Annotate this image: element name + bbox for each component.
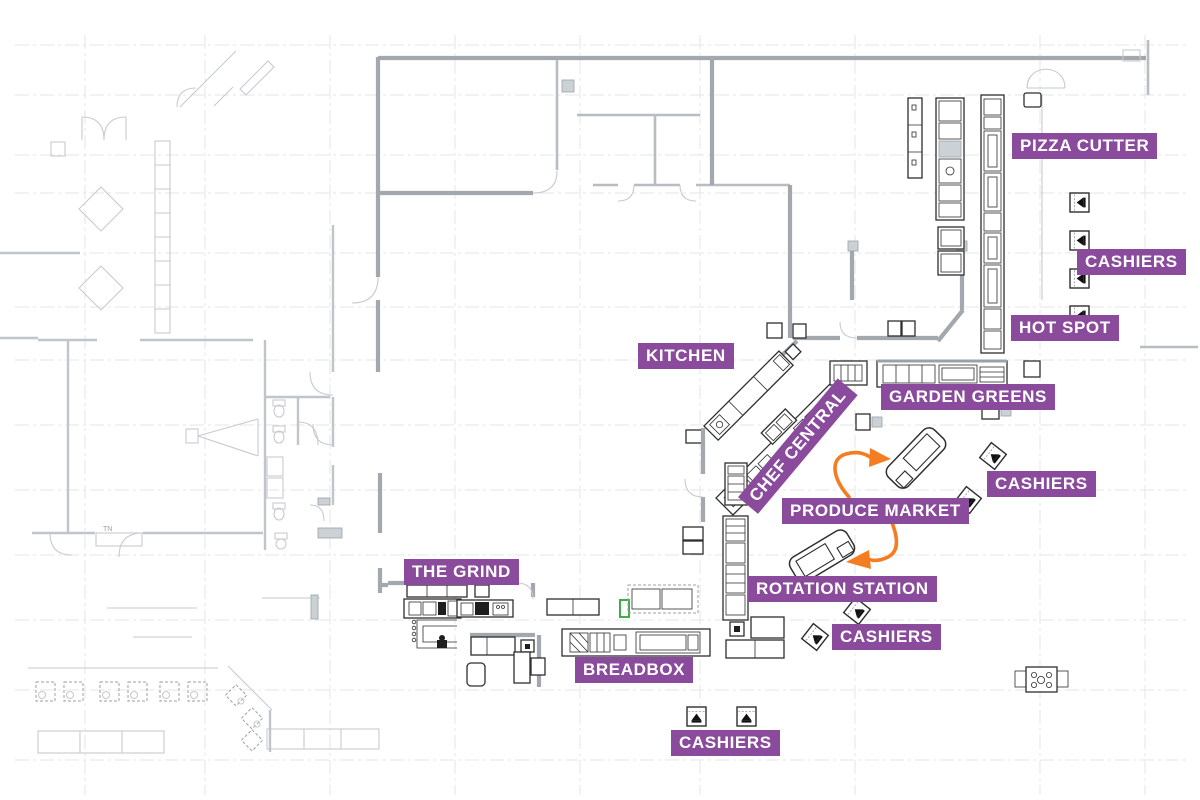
flow-arrow-south [868,518,897,560]
label-cashiers-right: CASHIERS [1077,249,1186,275]
label-hot-spot: HOT SPOT [1011,315,1119,341]
label-kitchen: KITCHEN [638,343,734,369]
label-breadbox: BREADBOX [575,657,693,683]
label-rotation-station: ROTATION STATION [748,576,937,602]
floor-plan-stage: TN PIZZA CUTTER CASHIERS HOT SPOT GARDEN… [0,0,1200,800]
four-top-table [1015,667,1068,692]
label-cashiers-rotation: CASHIERS [832,624,941,650]
produce-case-north [883,425,949,492]
cashier-stand-icon [1070,231,1089,250]
label-cashiers-south: CASHIERS [671,730,780,756]
cashier-stand-icon [980,443,1007,470]
label-cashiers-produce: CASHIERS [987,471,1096,497]
label-produce-market: PRODUCE MARKET [782,498,969,524]
plan-note-tn: TN [103,526,112,533]
label-the-grind: THE GRIND [404,559,519,585]
cashier-stand-icon [1070,193,1089,212]
flow-arrow-north-head [869,448,891,467]
cashier-stand-icon [737,707,756,726]
cashier-stand-icon [802,624,829,651]
label-garden-greens: GARDEN GREENS [881,384,1055,410]
architecture-light [0,51,342,637]
label-pizza-cutter: PIZZA CUTTER [1012,133,1157,159]
cashier-stand-icon [687,707,706,726]
hot-spot-counter [981,95,1004,353]
